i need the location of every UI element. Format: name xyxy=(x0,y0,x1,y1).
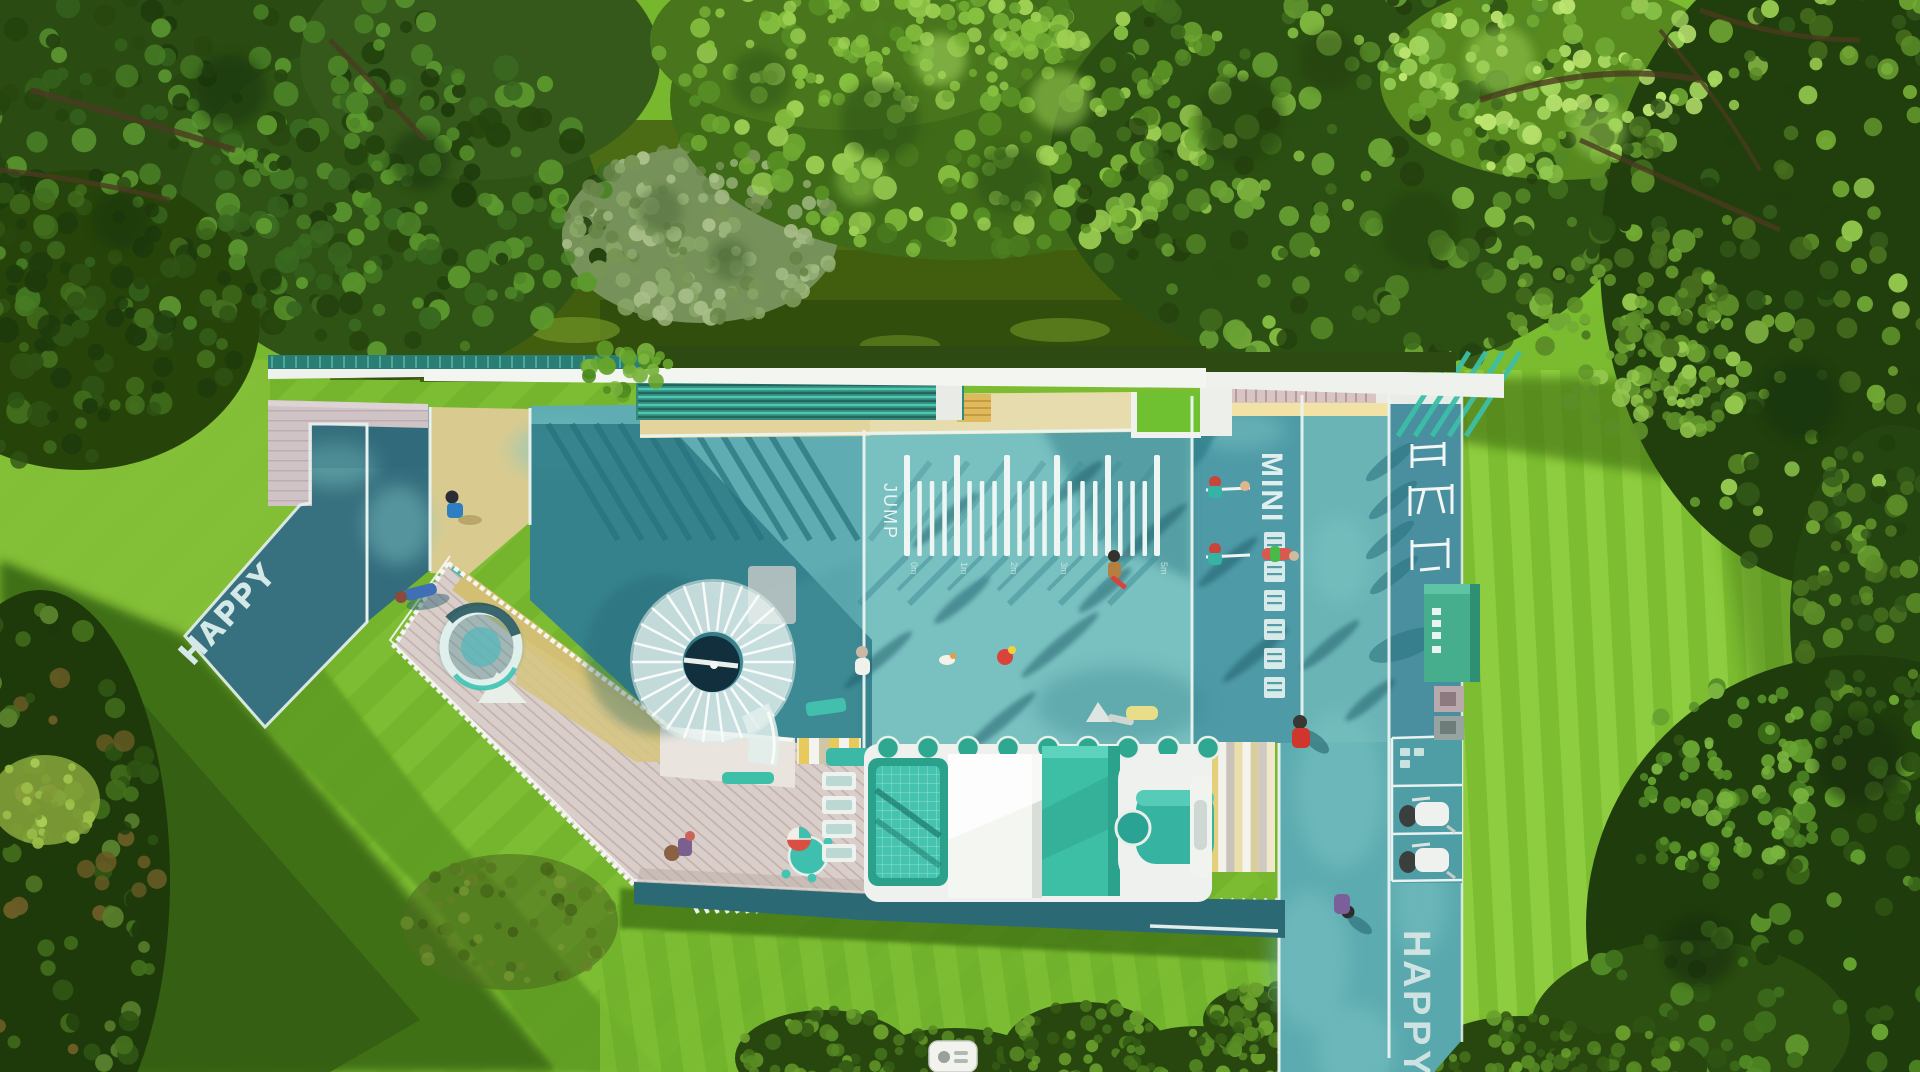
svg-text:0m: 0m xyxy=(909,562,919,575)
svg-text:A: A xyxy=(1395,960,1437,987)
svg-text:1m: 1m xyxy=(959,562,969,575)
svg-text:2m: 2m xyxy=(1009,562,1019,575)
svg-text:Y: Y xyxy=(1395,1050,1437,1072)
svg-text:MINI: MINI xyxy=(1255,452,1288,523)
svg-text:H: H xyxy=(1395,930,1437,957)
svg-text:3m: 3m xyxy=(1059,562,1069,575)
svg-text:JUMP: JUMP xyxy=(880,483,900,540)
svg-text:5m: 5m xyxy=(1159,562,1169,575)
svg-text:P: P xyxy=(1395,990,1437,1015)
svg-text:P: P xyxy=(1395,1020,1437,1045)
